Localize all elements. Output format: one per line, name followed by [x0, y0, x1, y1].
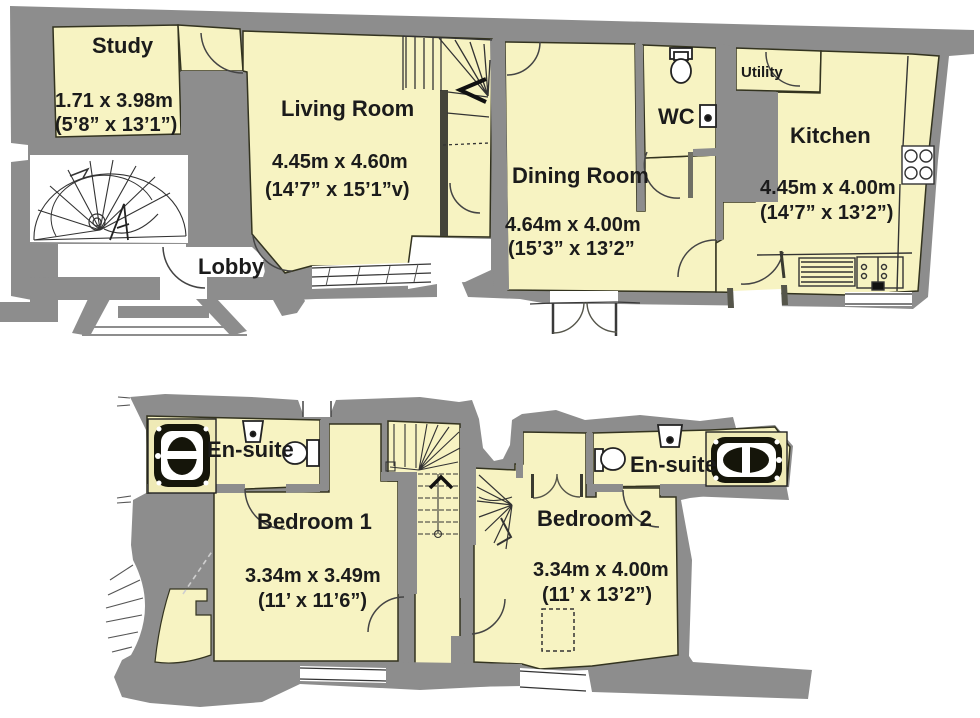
svg-text:3.34m x 3.49m: 3.34m x 3.49m — [245, 565, 381, 587]
svg-text:(14’7” x 15’1”v): (14’7” x 15’1”v) — [265, 179, 410, 201]
svg-text:Utility: Utility — [741, 64, 783, 81]
svg-text:(11’ x 13’2”): (11’ x 13’2”) — [542, 584, 652, 606]
svg-text:1.71 x 3.98m: 1.71 x 3.98m — [55, 90, 173, 112]
svg-text:Bedroom 2: Bedroom 2 — [537, 506, 652, 531]
svg-text:(15’3” x 13’2”: (15’3” x 13’2” — [508, 238, 635, 260]
svg-text:4.64m x 4.00m: 4.64m x 4.00m — [505, 214, 641, 236]
svg-text:Kitchen: Kitchen — [790, 123, 871, 148]
svg-text:Living Room: Living Room — [281, 96, 414, 121]
svg-text:3.34m x 4.00m: 3.34m x 4.00m — [533, 559, 669, 581]
svg-text:WC: WC — [658, 104, 695, 129]
svg-text:(14’7” x 13’2”): (14’7” x 13’2”) — [760, 202, 893, 224]
svg-text:Dining Room: Dining Room — [512, 163, 649, 188]
svg-text:(5’8” x 13’1”): (5’8” x 13’1”) — [55, 114, 177, 136]
svg-text:Study: Study — [92, 33, 154, 58]
svg-text:Lobby: Lobby — [198, 254, 265, 279]
svg-text:(11’ x 11’6”): (11’ x 11’6”) — [258, 590, 367, 612]
svg-text:4.45m x 4.60m: 4.45m x 4.60m — [272, 151, 408, 173]
svg-text:Bedroom 1: Bedroom 1 — [257, 509, 372, 534]
svg-text:4.45m x 4.00m: 4.45m x 4.00m — [760, 177, 896, 199]
svg-text:En-suite: En-suite — [207, 437, 294, 462]
svg-text:En-suite: En-suite — [630, 452, 717, 477]
